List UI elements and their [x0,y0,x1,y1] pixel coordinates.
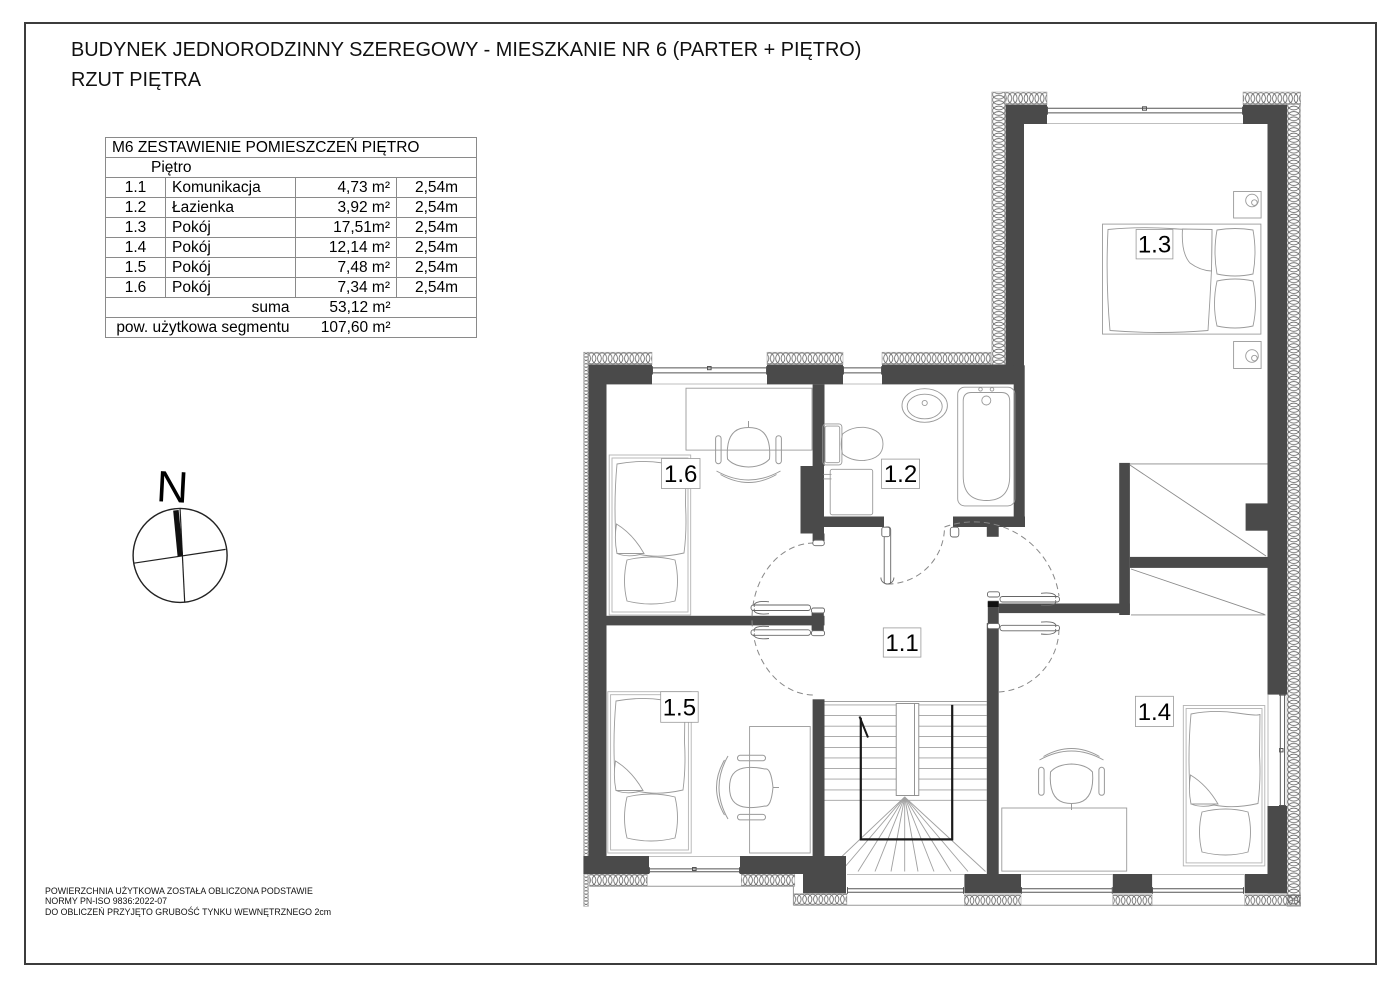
svg-text:1.3: 1.3 [1138,232,1171,259]
svg-text:1.2: 1.2 [884,461,917,488]
svg-text:1.6: 1.6 [664,461,697,488]
svg-text:N: N [155,462,189,513]
svg-text:1.1: 1.1 [885,630,918,657]
svg-text:1.5: 1.5 [663,695,696,722]
svg-text:1.4: 1.4 [1138,699,1171,726]
